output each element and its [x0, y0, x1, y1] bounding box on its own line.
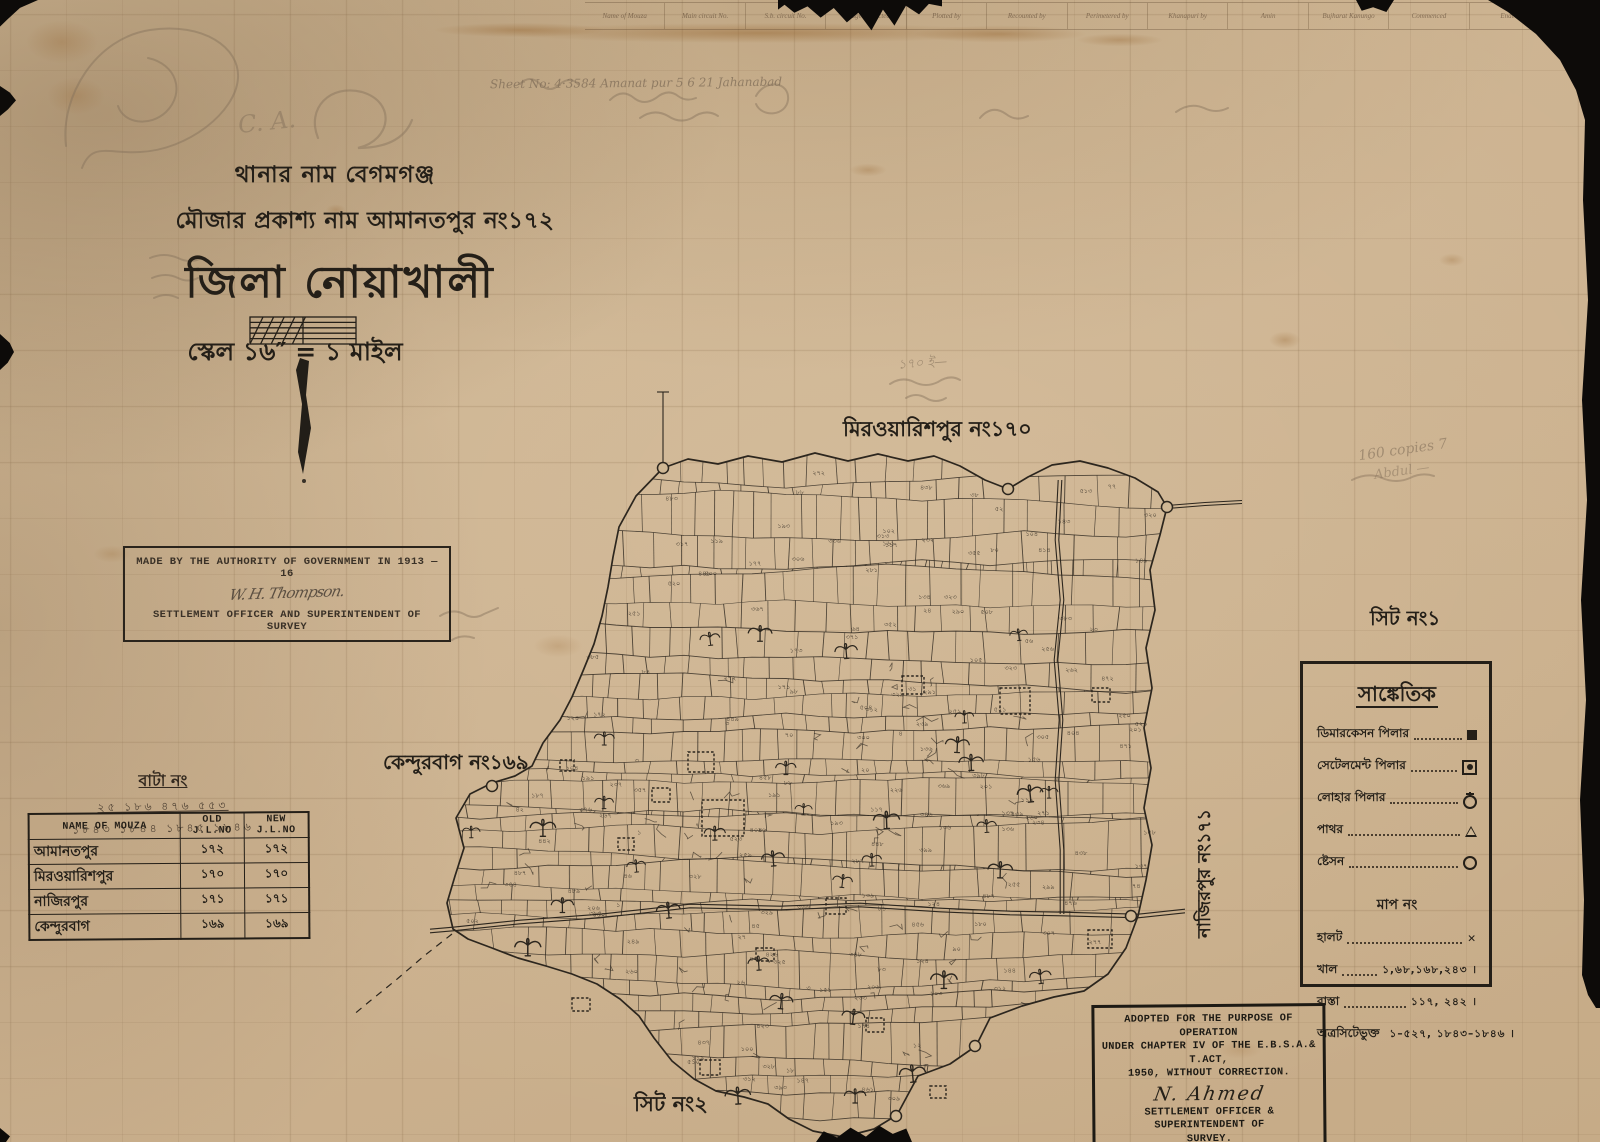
legend-number-row: হালট✕	[1317, 929, 1477, 949]
dotted-leader	[1390, 794, 1458, 805]
plot-number: ৮৩	[877, 966, 886, 974]
plot-number: ২৯১	[923, 688, 936, 696]
plot-number: ১০৩	[930, 990, 943, 998]
sq-dot-icon	[1462, 760, 1477, 775]
plot-number: ১৯১	[582, 774, 595, 782]
table-row: আমানতপুর১৭২১৭২	[29, 838, 309, 865]
circle-cross-icon	[1463, 795, 1477, 809]
plot-number: ২৭৭	[1089, 938, 1102, 946]
plot-number: ২০৬	[867, 983, 880, 991]
plot-number: ১৭৪	[857, 1022, 870, 1030]
plot-number: ২৮৭	[851, 857, 864, 865]
tank-symbol	[1092, 688, 1110, 702]
plot-number: ১৭১	[778, 683, 791, 691]
plot-number: ৩৯৯	[919, 846, 932, 854]
legend-label: লোহার পিলার	[1317, 789, 1385, 809]
plot-number: ৭০	[785, 731, 793, 739]
plot-number: ২৩২	[922, 536, 935, 544]
dotted-leader	[1414, 730, 1462, 741]
tree-symbol	[959, 754, 984, 771]
plot-number: ৩১২	[994, 985, 1007, 993]
plot-number: ৫০৮	[980, 608, 993, 616]
authority-signature: W. H. Thompson.	[228, 582, 346, 604]
plot-number: ৩২৫	[773, 958, 786, 966]
label-sheet-2: সিট নং২	[634, 1088, 708, 1123]
station-circle	[891, 1111, 902, 1122]
plot-number: ১৭৩	[790, 647, 803, 655]
plot-number: ৩১৭	[676, 540, 689, 548]
plot-number: ২৭২	[812, 469, 825, 477]
plot-number: ১৮	[786, 1067, 795, 1075]
label-east-neighbor: নাজিরপুর নং১৭১	[1190, 809, 1221, 938]
legend-row: পাথর	[1317, 821, 1477, 841]
tree-symbol	[862, 853, 882, 867]
plot-number: ৯০	[952, 945, 960, 953]
plot-number: ১৫৬	[1028, 755, 1041, 763]
plot-number: ১২৪	[916, 957, 929, 965]
adoption-stamp: ADOPTED FOR THE PURPOSE OF OPERATION UND…	[1091, 1003, 1326, 1142]
plot-number: ৪৪৮	[871, 840, 884, 848]
legend-label: ডিমারকেসন পিলার	[1317, 725, 1409, 745]
plot-number: ১৬১	[882, 539, 895, 547]
plot-number: ৩৬৬	[797, 903, 810, 911]
plot-number: ৩৬৭	[751, 605, 764, 613]
station-circle	[1162, 502, 1173, 513]
dotted-leader	[1411, 762, 1457, 773]
legend-value: ✕	[1467, 933, 1477, 945]
legend-label: খাল	[1317, 961, 1337, 981]
plot-number: ৪৩৯	[1011, 810, 1024, 818]
plot-number: ২৩৩	[854, 994, 867, 1002]
legend-label: অত্রসিটেভুক্ত	[1317, 1025, 1380, 1045]
plot-number: ৮৪	[642, 668, 650, 676]
legend-label: পাথর	[1317, 821, 1343, 841]
plot-number: ৪৭১	[1119, 742, 1132, 750]
legend-label: হালট	[1317, 929, 1342, 949]
plot-number: ১১৯	[710, 537, 723, 545]
plot-number: ২৪	[923, 606, 931, 614]
plot-number: ১৪৩	[1058, 518, 1071, 526]
plot-number: ১৪৪	[1003, 967, 1016, 975]
authority-line: MADE BY THE AUTHORITY OF GOVERNMENT IN 1…	[131, 556, 443, 580]
station-circle	[487, 781, 498, 792]
district-name: জিলা নোয়াখালী	[140, 249, 540, 322]
tree-symbol	[776, 761, 796, 775]
pencil-note: ১৭০ ই—	[897, 352, 948, 376]
label-north-neighbor: মিরওয়ারিশপুর নং১৭০	[843, 413, 1032, 448]
plot-number: ২৮১	[865, 566, 878, 574]
plot-number: ১৭২	[593, 710, 606, 718]
plot-number: ৩২৮	[689, 872, 702, 880]
plot-number: ৩৮৫	[589, 909, 602, 917]
plot-number: ৫১৩	[1080, 487, 1093, 495]
plot-number: ১	[637, 828, 641, 836]
plot-number: ১৫৮	[1143, 829, 1156, 837]
stamp-line-5: SURVEY.	[1101, 1132, 1317, 1142]
legend-row: সেটেলমেন্ট পিলার	[1317, 757, 1477, 777]
plot-number: ৩২৮	[762, 1062, 775, 1070]
dotted-leader	[1347, 934, 1462, 945]
plot-number: ৩৫৭	[634, 786, 647, 794]
plot-number: ৬৪	[851, 625, 859, 633]
legend-row: লোহার পিলার	[1317, 789, 1477, 809]
plot-number: ৪৬	[623, 872, 632, 880]
station-circle	[1126, 911, 1137, 922]
plot-number: ৪২	[515, 806, 523, 814]
plot-number: ১	[616, 901, 620, 909]
title-block: থানার নাম বেগমগঞ্জ মৌজার প্রকাশ্য নাম আম…	[140, 156, 600, 375]
plot-number: ৪৫৮	[759, 773, 772, 781]
ink-streak	[296, 358, 311, 474]
mouza-name-cell: নাজিরপুর	[29, 888, 181, 914]
plot-number: ৪১৪	[1038, 546, 1051, 554]
plot-number: ৩৭৬	[579, 806, 592, 814]
legend-box: সাঙ্কেতিক ডিমারকেসন পিলারসেটেলমেন্ট পিলা…	[1300, 661, 1492, 987]
plot-number: ১১৭	[870, 805, 883, 813]
plot-number: ৩২০	[1144, 511, 1157, 519]
dotted-leader	[1348, 826, 1460, 837]
plot-number: ৩	[635, 757, 640, 765]
jl-number-cell: ১৭২	[180, 838, 244, 863]
legend-number-row: অত্রসিটেভুক্ত১–৫২৭, ১৮৪৩–১৮৪৬ ।	[1317, 1025, 1477, 1045]
circle-icon	[1463, 856, 1477, 870]
road-line	[1058, 480, 1064, 914]
plot-number: ৩০৬	[792, 555, 805, 563]
thana-name: থানার নাম বেগমগঞ্জ	[140, 156, 530, 195]
stamp-line-1: ADOPTED FOR THE PURPOSE OF OPERATION	[1100, 1012, 1316, 1041]
pencil-note: Sheet No: 4·3584 Amanat pur 5 6 21 Jahan…	[490, 75, 782, 92]
tank-symbol	[572, 998, 590, 1011]
legend-value: ১–৫২৭, ১৮৪৩–১৮৪৬ ।	[1390, 1027, 1515, 1044]
triangle-icon	[1465, 826, 1477, 837]
plot-number: ২৭১	[1037, 809, 1050, 817]
tree-symbol	[699, 631, 720, 646]
plot-number: ২০	[861, 766, 869, 774]
plot-number: ৫২১	[994, 705, 1007, 713]
plot-number: ৩৫২	[884, 621, 897, 629]
plot-number: ৪৩৭	[697, 1039, 710, 1047]
label-west-neighbor: কেন্দুরবাগ নং১৬৯	[383, 748, 529, 781]
legend-number-row: রাস্তা১১৭, ২৪২ ।	[1317, 993, 1477, 1013]
tank-symbol	[652, 788, 670, 802]
plot-number: ৩০০	[857, 734, 870, 742]
jl-number-cell: ১৬৯	[181, 913, 245, 939]
plot-number: ৩৪৮	[849, 951, 862, 959]
plot-number: ১০৪	[1025, 530, 1038, 538]
plot-number: ৪৪২	[538, 837, 551, 845]
plot-number: ৩৮৩	[1059, 614, 1072, 622]
dotted-leader	[1349, 858, 1458, 869]
station-circle	[970, 1041, 981, 1052]
plot-number: ৩৯৮	[972, 772, 985, 780]
stamp-line-2: UNDER CHAPTER IV OF THE E.B.S.A.& T.ACT,	[1101, 1039, 1317, 1068]
legend-title: সাঙ্কেতিক	[1317, 678, 1477, 713]
plot-number: ৭২	[695, 822, 703, 830]
plot-number: ৩২৩	[1004, 664, 1017, 672]
plot-number: ১৭৭	[749, 560, 762, 568]
table-header: NAME OF MOUZA	[29, 813, 181, 840]
plot-number: ৪০৪	[1067, 729, 1080, 737]
table-row: মিরওয়ারিশপুর১৭০১৭০	[29, 863, 309, 890]
plot-number: ১৩৭	[1135, 862, 1148, 870]
plot-number: ৪৩৮	[920, 484, 933, 492]
tree-symbol	[832, 873, 853, 888]
plot-number: ৮১	[878, 904, 886, 912]
tree-symbol	[626, 859, 646, 873]
plot-number: ৩৭১	[846, 633, 859, 641]
plot-number: ১৯১	[768, 791, 781, 799]
plot-number: ৩৮৫	[586, 653, 599, 661]
tree-symbol	[945, 736, 970, 753]
tree-symbol	[899, 1064, 927, 1084]
jl-number-cell: ১৭০	[244, 863, 309, 888]
tank-symbol	[930, 1086, 946, 1098]
mouza-name-cell: মিরওয়ারিশপুর	[29, 863, 181, 889]
tree-symbol	[462, 826, 480, 838]
plot-number: ৪৭৬	[1064, 899, 1077, 907]
dashed-boundary-line	[352, 934, 452, 1016]
plot-number: ১০০	[741, 1045, 754, 1053]
plot-number: ১৫১	[819, 986, 832, 994]
mouza-jl-table: NAME OF MOUZAOLD J.L.NONEW J.L.NO আমানতপ…	[28, 811, 311, 941]
plot-number: ২৬০	[1025, 814, 1038, 822]
legend-label: ষ্টেসন	[1317, 853, 1344, 873]
plot-number: ২৫৯	[739, 851, 752, 859]
legend-number-row: খাল১,৬৮,১৬৮,২৪৩ ।	[1317, 961, 1477, 981]
plot-number: ২৯০	[952, 608, 965, 616]
plot-number: ১৩৯	[862, 892, 875, 900]
plot-number: ৫২	[995, 505, 1003, 513]
table-header: OLD J.L.NO	[180, 812, 244, 838]
jl-number-cell: ১৭১	[181, 888, 245, 913]
tree-symbol	[761, 850, 785, 867]
jl-number-cell: ১৭০	[180, 863, 244, 888]
stamp-line-4: SETTLEMENT OFFICER & SUPERINTENDENT OF	[1101, 1105, 1317, 1134]
plot-number: ৪৫	[751, 922, 759, 930]
plot-number: ২৫১	[628, 610, 641, 618]
stamp-signature: N. Ahmed	[1152, 1082, 1267, 1105]
plot-number: ৩১২	[865, 706, 878, 714]
plot-number: ৪৭	[749, 955, 757, 963]
plot-number: ২৯৯	[1042, 883, 1055, 891]
plot-number: ৮০	[990, 546, 998, 554]
plot-number: ৫৬	[1025, 637, 1034, 645]
plot-number: ২৫০	[1118, 712, 1131, 720]
plot-number: ১০৫	[970, 656, 983, 664]
tree-symbol	[1029, 968, 1052, 985]
legend-value: ১১৭, ২৪২ ।	[1411, 995, 1477, 1012]
plot-number: ২৬০	[625, 968, 638, 976]
plot-number: ৪৮৭	[514, 869, 527, 877]
plot-number: ৩৩৬	[828, 537, 841, 545]
plot-number: ১২	[913, 1042, 921, 1050]
plot-number: ১২৪	[927, 900, 940, 908]
plot-number: ১৪৭	[796, 1076, 809, 1084]
plot-number: ৩২৯	[760, 909, 773, 917]
plot-number: ২০১	[980, 783, 993, 791]
table-row: নাজিরপুর১৭১১৭১	[29, 888, 309, 915]
plot-number: ২৬৭	[599, 812, 612, 820]
plot-number: ৩৫৪	[504, 881, 517, 889]
table-header: NEW J.L.NO	[244, 812, 309, 838]
plot-number: ৪৮৯	[568, 887, 581, 895]
plot-number: ১২৪	[566, 714, 579, 722]
plot-number: ২৬	[736, 979, 745, 987]
legend-subtitle: মাপ নং	[1317, 893, 1477, 917]
label-sheet-1: সিট নং১	[1370, 604, 1440, 637]
plot-number: ৭৭	[1108, 483, 1116, 491]
plot-number: ২৬২	[1065, 666, 1078, 674]
stamp-line-3: 1950, WITHOUT CORRECTION.	[1101, 1066, 1317, 1081]
plot-number: ২৫৬	[1041, 645, 1054, 653]
mouza-name-cell: কেন্দুরবাগ	[29, 913, 181, 940]
tree-symbol	[704, 826, 725, 840]
tree-symbol	[931, 971, 957, 989]
plot-number: ৩২৩	[944, 593, 957, 601]
pencil-note: C. A.	[237, 105, 297, 139]
plot-number: ৩৯৩	[774, 1084, 787, 1092]
legend-row: ষ্টেসন	[1317, 853, 1477, 873]
mouza-name-cell: আমানতপুর	[29, 838, 181, 864]
plot-number: ১৮০	[974, 920, 987, 928]
plot-number: ১৮৭	[531, 792, 544, 800]
plot-number: ১৪৯	[1135, 557, 1148, 565]
jl-number-cell: ১৭২	[244, 838, 309, 863]
authority-box: MADE BY THE AUTHORITY OF GOVERNMENT IN 1…	[123, 546, 451, 642]
plot-number: ৪০০	[704, 569, 717, 577]
plot-number: ৫২৩	[730, 835, 743, 843]
plot-number: ৮৮	[784, 779, 793, 787]
plot-number: ৩১	[908, 685, 916, 693]
plot-number: ৩৫৫	[968, 549, 981, 557]
road-line	[1167, 501, 1242, 506]
legend-label: সেটেলমেন্ট পিলার	[1317, 757, 1406, 777]
dotted-leader	[1342, 966, 1377, 977]
plot-number: ২৫১	[949, 707, 962, 715]
plot-number: ১৯৩	[777, 522, 790, 530]
plot-number: ৩০৯	[888, 1095, 901, 1103]
station-circle	[1003, 484, 1014, 495]
plot-number: ৪২৩	[756, 1022, 769, 1030]
scanned-survey-map-sheet: Name of MouzaMain circuit No.S.b. circui…	[0, 0, 1600, 1142]
tree-symbol	[769, 992, 793, 1009]
authority-office: SETTLEMENT OFFICER AND SUPERINTENDENT OF…	[131, 609, 443, 633]
plot-number: ৩১২	[743, 1075, 756, 1083]
plot-number: ৪৬১	[861, 1086, 874, 1094]
plot-number: ২২৬	[890, 786, 903, 794]
plot-number: ৫২০	[668, 580, 681, 588]
plot-number: ৩০৫	[1036, 733, 1049, 741]
plot-number: ২০১	[1129, 726, 1142, 734]
mouza-name: মৌজার প্রকাশ্য নাম আমানতপুর নং১৭২	[140, 202, 590, 241]
plot-number: ৪	[898, 730, 902, 738]
tree-symbol	[834, 643, 858, 660]
jl-number-cell: ১৬৯	[245, 913, 310, 939]
plot-number: ৩০৭	[1042, 929, 1055, 937]
plot-number: ২৪৯	[627, 937, 640, 945]
plot-number: ২৩৭	[610, 781, 623, 789]
plot-number: ৩	[806, 984, 811, 992]
plot-number: ৩৪৬	[920, 810, 933, 818]
tank-symbol	[618, 838, 634, 850]
plot-number: ২৭২	[723, 674, 736, 682]
plot-number: ৪৮৭	[982, 892, 995, 900]
tree-symbol	[594, 732, 614, 745]
plot-number: ৩৬৯	[938, 782, 951, 790]
scale-note: স্কেল ১৬″ = ১ মাইল	[140, 332, 450, 375]
plot-number: ২৩৯	[916, 720, 929, 728]
plot-number: ১৩৬	[920, 745, 933, 753]
plot-number: ৩২৯	[891, 691, 904, 699]
sq-filled-icon	[1467, 730, 1477, 740]
plot-number: ২৫৫	[1008, 881, 1021, 889]
plot-number: ১৩৬	[939, 824, 952, 832]
plot-number: ৪০৪	[750, 826, 763, 834]
plot-number: ১০৪	[566, 764, 579, 772]
plot-number: ১৯৩	[830, 819, 843, 827]
plot-number: ৫০২	[466, 917, 479, 925]
station-circle	[658, 463, 669, 474]
plot-number: ১৩৬	[1001, 825, 1014, 833]
legend-value: ১,৬৮,১৬৮,২৪৩ ।	[1382, 963, 1477, 980]
tank-symbol	[702, 800, 744, 836]
plot-number: ১১৯	[1021, 796, 1034, 804]
plot-number: ৪৫৬	[911, 920, 924, 928]
tree-symbol	[873, 811, 900, 829]
jl-number-cell: ১৭১	[245, 888, 310, 913]
legend-row: ডিমারকেসন পিলার	[1317, 725, 1477, 745]
tree-symbol	[530, 819, 555, 836]
bata-title: বাটা নং	[139, 771, 188, 790]
plot-number: ৭৪	[1132, 882, 1140, 890]
plot-number: ৫১০	[687, 1058, 700, 1066]
table-row: কেন্দুরবাগ১৬৯১৬৯	[29, 913, 309, 940]
plot-number: ৪৩৮	[1075, 849, 1088, 857]
plot-number: ১৩৪	[918, 593, 931, 601]
mouza-boundary	[447, 453, 1167, 1137]
plot-number: ২৭	[738, 933, 746, 941]
plot-number: ৩৮	[970, 491, 979, 499]
plot-number: ৪৮৩	[665, 494, 678, 502]
tree-symbol	[595, 796, 614, 808]
dotted-leader	[1344, 998, 1406, 1009]
plot-number: ৮৮	[796, 489, 805, 497]
plot-number: ৯৮	[790, 687, 799, 695]
plot-number: ৪৭২	[1101, 675, 1114, 683]
plot-number: ২৩	[1089, 626, 1098, 634]
